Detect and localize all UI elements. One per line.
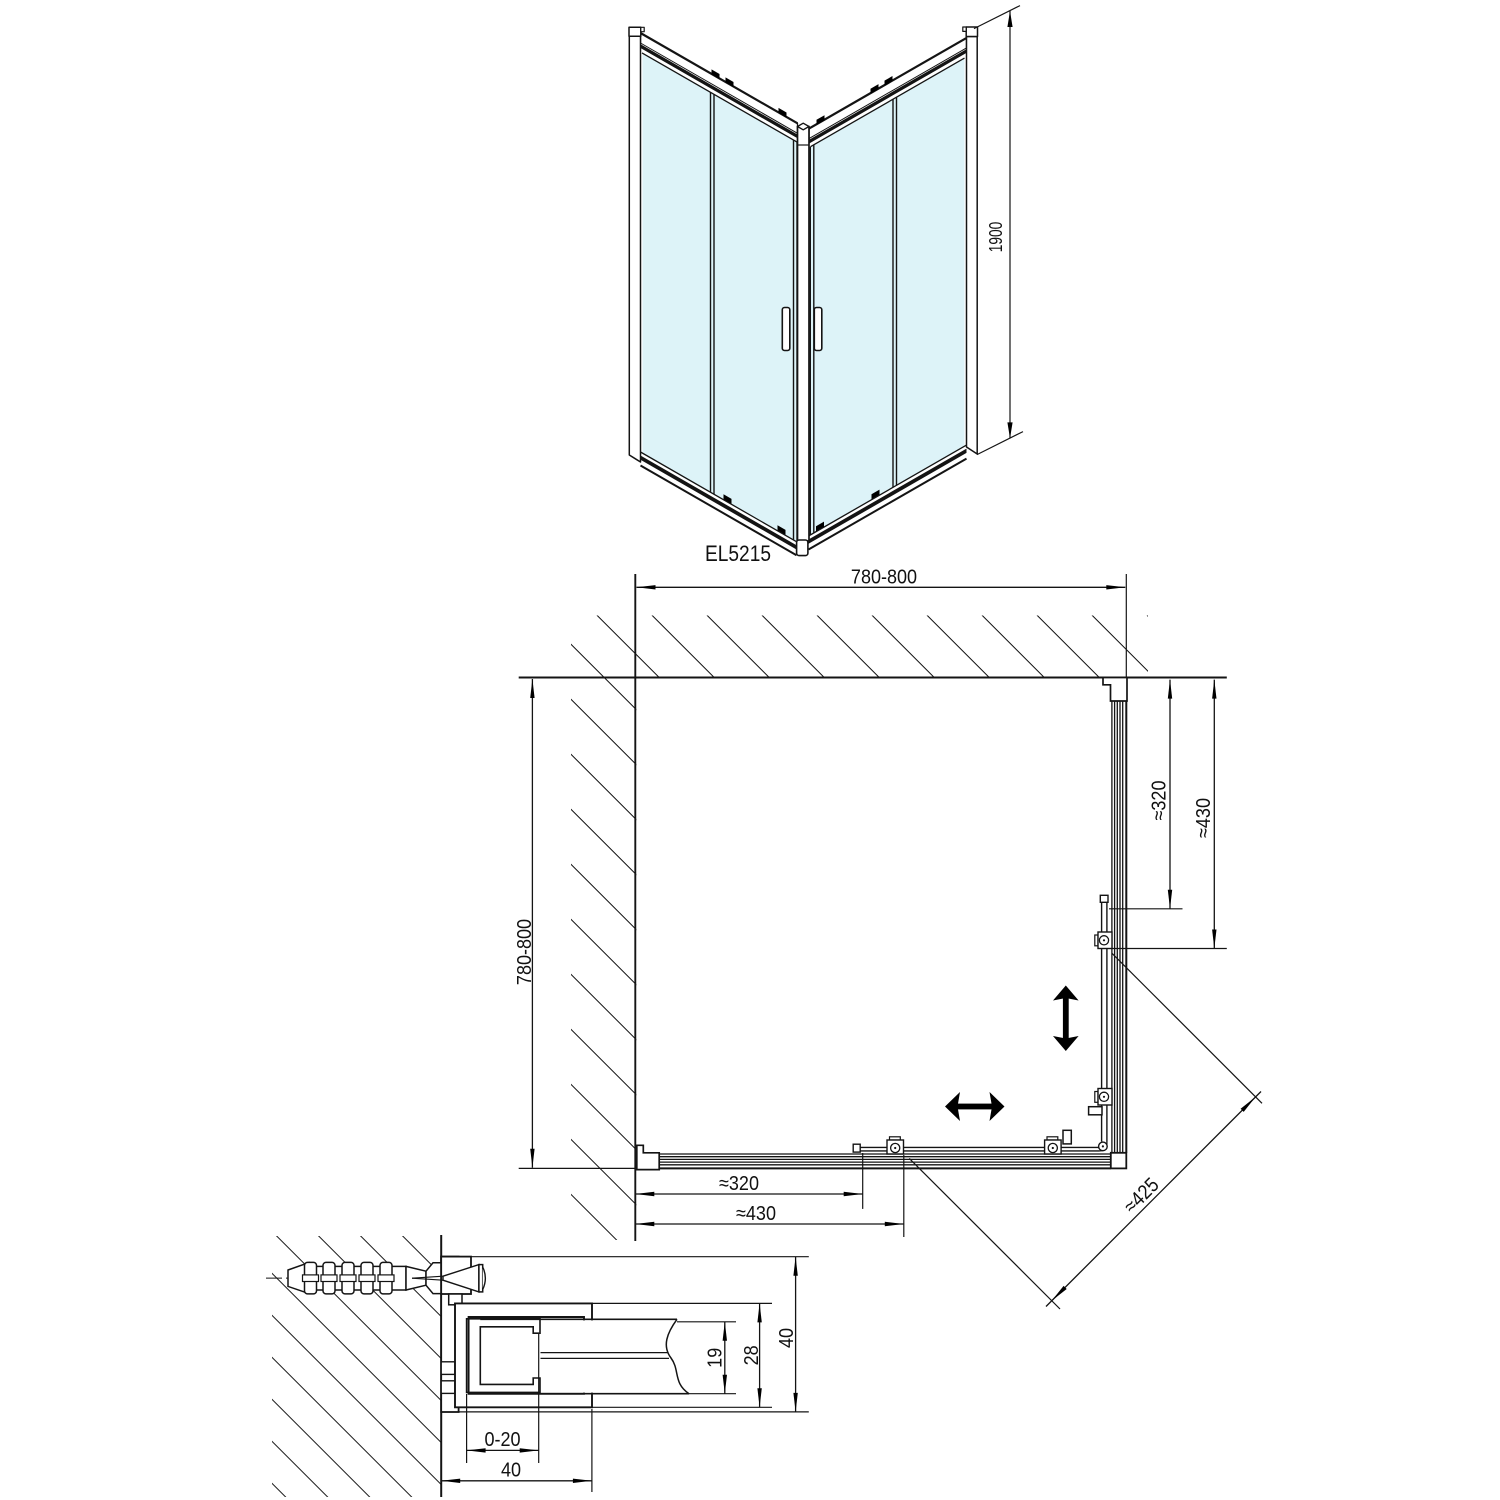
svg-text:40: 40 xyxy=(776,1328,798,1348)
svg-text:≈430: ≈430 xyxy=(1193,798,1215,838)
svg-text:19: 19 xyxy=(705,1348,727,1368)
svg-text:780-800: 780-800 xyxy=(514,919,536,985)
svg-text:28: 28 xyxy=(741,1345,763,1365)
svg-text:≈320: ≈320 xyxy=(719,1173,759,1195)
svg-text:0-20: 0-20 xyxy=(484,1429,520,1451)
svg-text:≈425: ≈425 xyxy=(1120,1174,1164,1218)
svg-text:1900: 1900 xyxy=(986,222,1006,252)
svg-text:40: 40 xyxy=(501,1460,521,1482)
svg-text:EL5215: EL5215 xyxy=(705,542,771,567)
svg-text:780-800: 780-800 xyxy=(851,567,917,589)
svg-text:≈320: ≈320 xyxy=(1148,781,1170,821)
svg-text:≈430: ≈430 xyxy=(736,1203,776,1225)
